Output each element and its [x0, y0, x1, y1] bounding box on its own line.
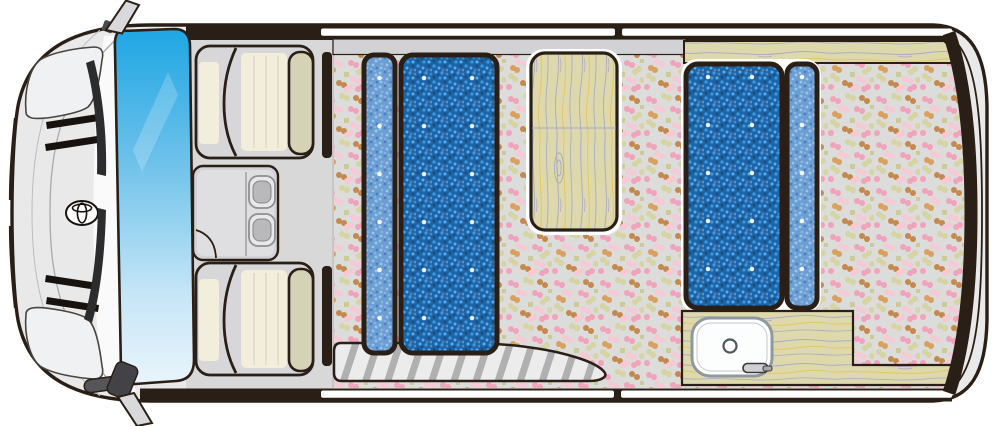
- windshield: [115, 29, 194, 384]
- brand-emblem: [66, 201, 98, 225]
- bed-mat-front-narrow: [364, 55, 395, 353]
- campervan-floorplan: Top-view floor plan illustration of a ca…: [0, 0, 1000, 426]
- bed-mat-front-wide: [401, 55, 497, 353]
- cab-cabin-divider: [332, 39, 334, 388]
- table-top: [531, 53, 617, 230]
- van-floorplan-svg: Top-view floor plan illustration of a ca…: [0, 0, 1000, 426]
- rear-bed-mats: [681, 59, 821, 313]
- window-bottom-front: [321, 391, 614, 398]
- center-console: [193, 166, 278, 260]
- bed-mat-rear-wide: [686, 64, 782, 308]
- window-top-rear: [622, 29, 952, 36]
- b-pillar-lower: [322, 266, 332, 366]
- faucet: [743, 364, 772, 373]
- cup-holder-2: [249, 214, 275, 246]
- front-bed-mats: [364, 55, 497, 353]
- front-seat-upper: [196, 46, 313, 158]
- b-pillar-upper: [322, 52, 332, 158]
- sink-drain: [724, 340, 737, 353]
- window-top-front: [321, 29, 615, 36]
- dining-table: [526, 49, 622, 235]
- cup-holder-1: [249, 176, 275, 208]
- side-trim-rail: [333, 39, 686, 55]
- window-bottom-rear: [621, 391, 952, 398]
- front-seat-lower: [196, 263, 313, 375]
- windshield-glass: [115, 29, 194, 384]
- bed-mat-rear-narrow: [787, 64, 817, 308]
